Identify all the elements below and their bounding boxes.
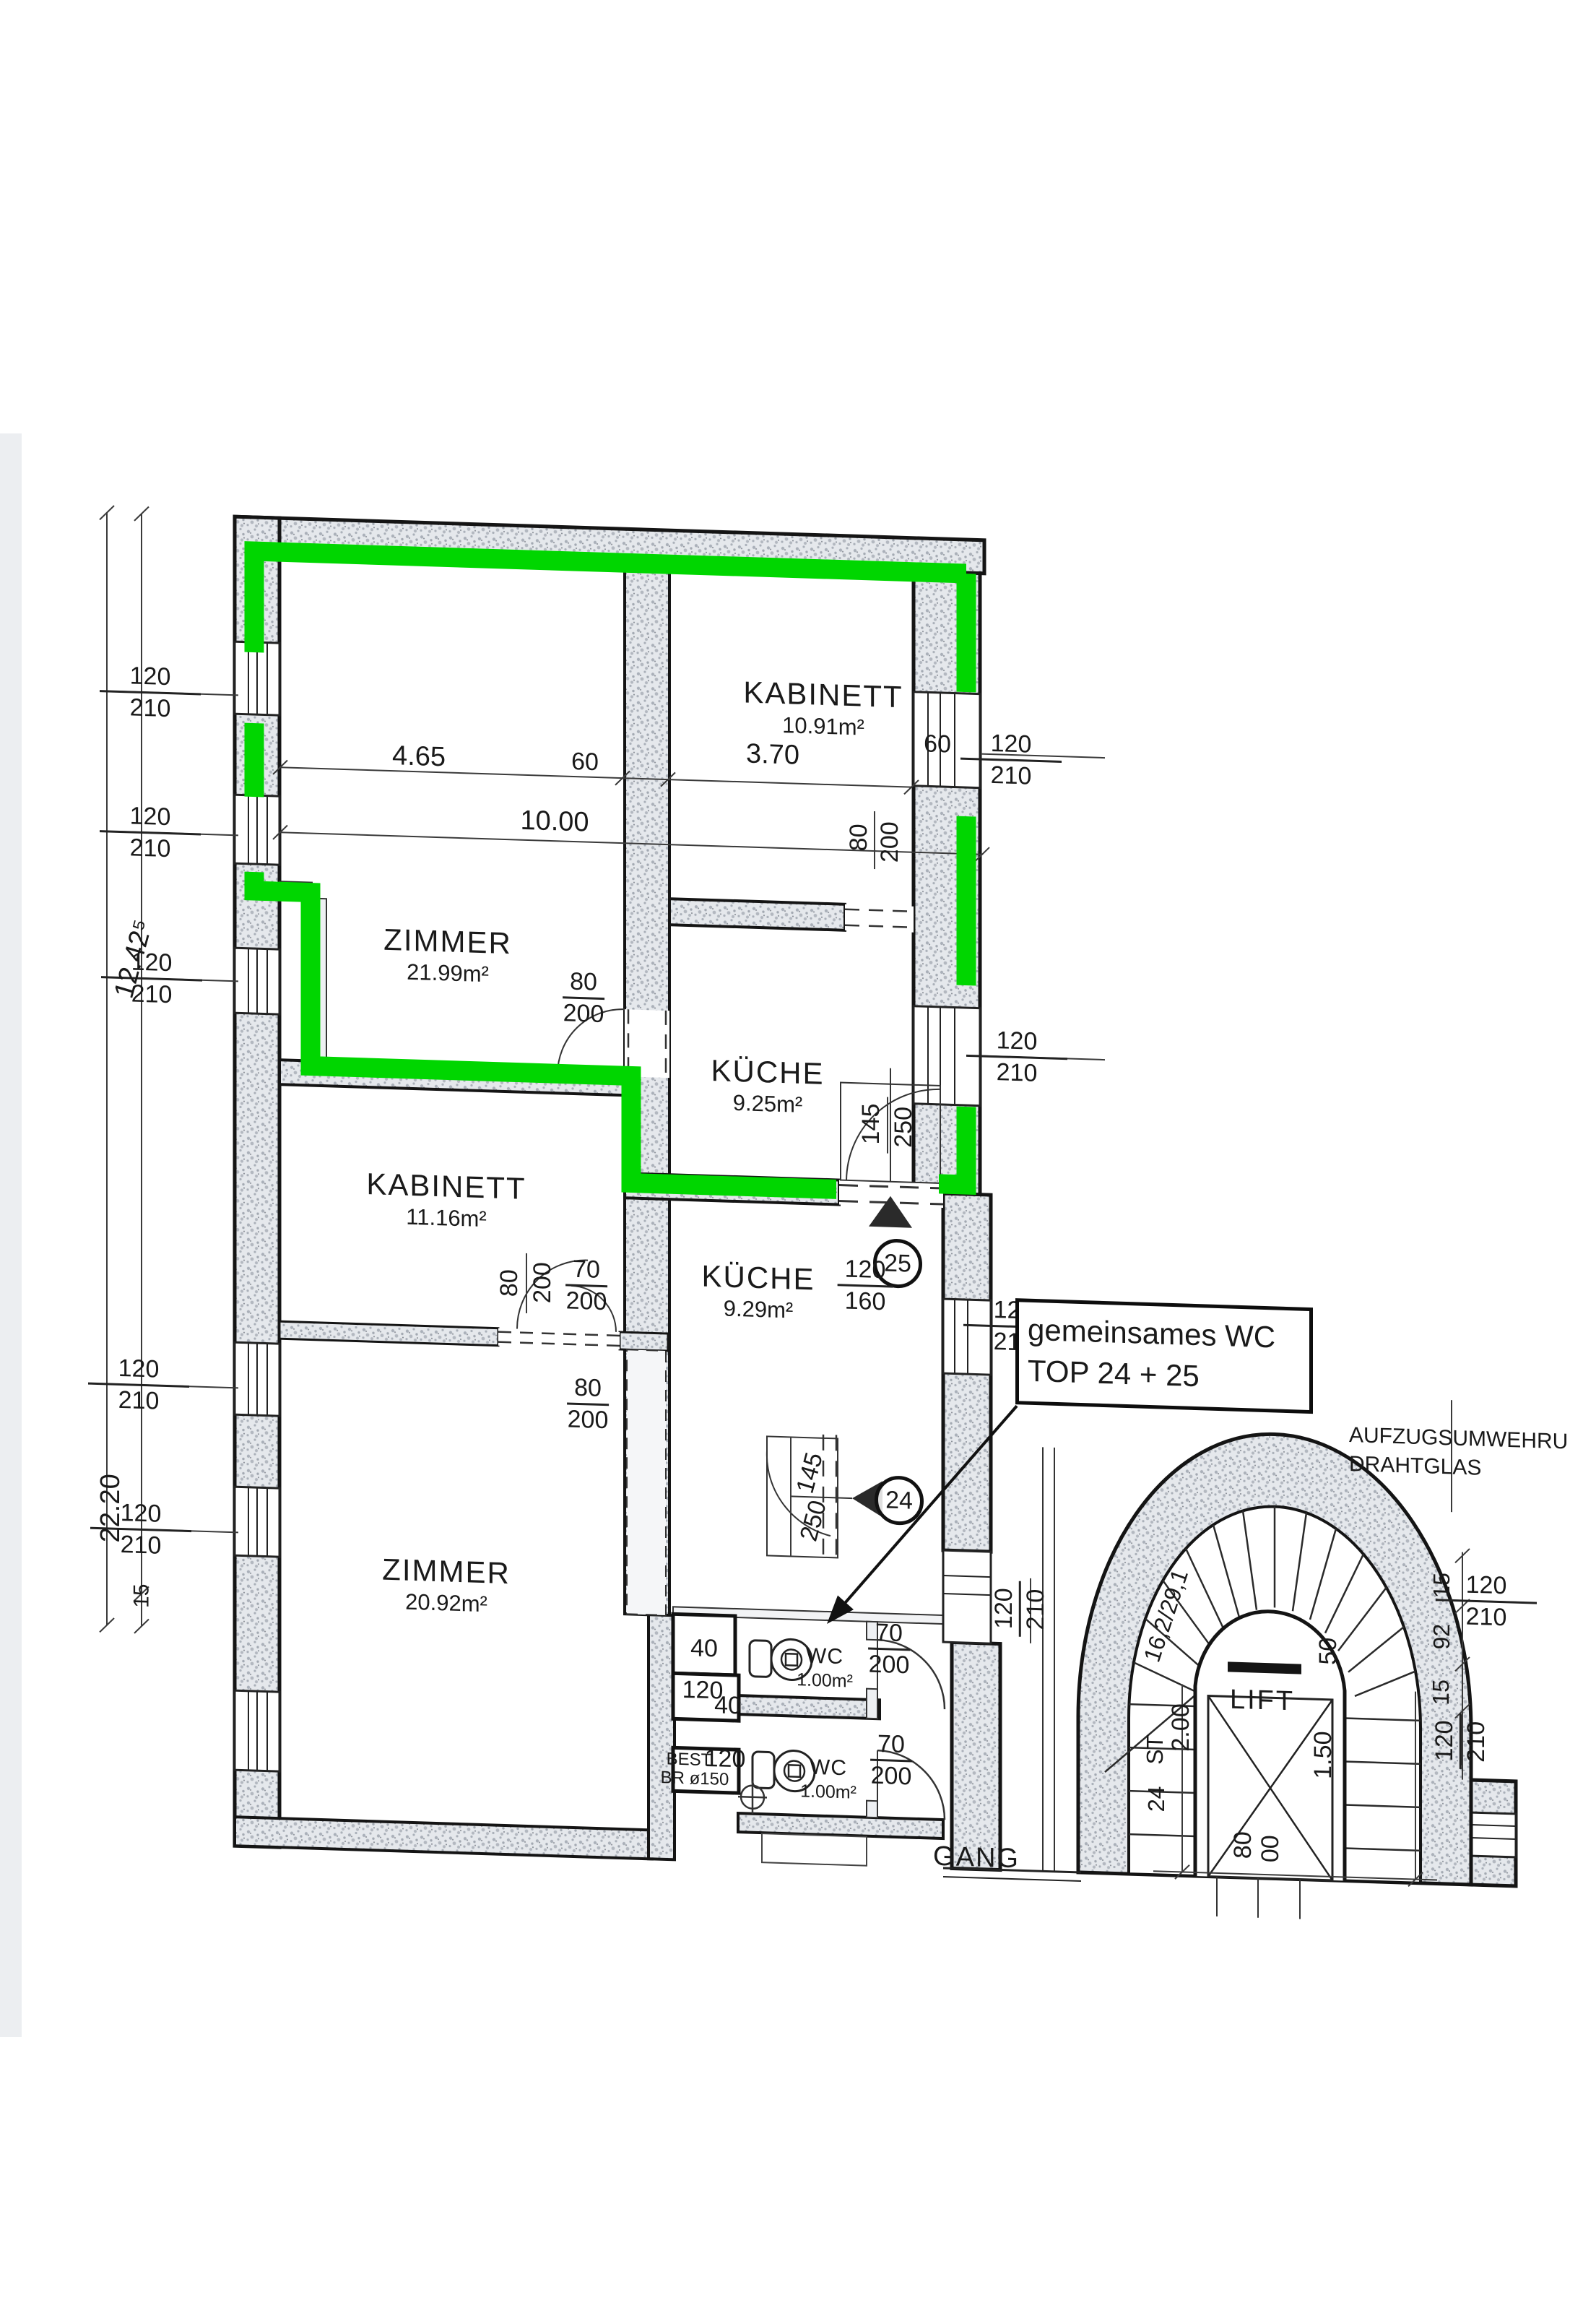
dim-40-b: 40 <box>714 1693 742 1719</box>
dim-rot-80-b: 80 <box>497 1269 523 1297</box>
dim-60-b: 60 <box>924 731 951 758</box>
room-label-zimmer-2092: ZIMMER20.92m² <box>382 1552 511 1619</box>
stairwell <box>943 1424 1471 1924</box>
dim-15-left: 15 <box>130 1583 153 1608</box>
dim-465: 4.65 <box>392 742 446 772</box>
dim-window-stair-side: 120210 <box>1431 1713 1489 1770</box>
dim-window-left-4: 120210 <box>88 1354 189 1416</box>
dim-window-right-1: 120210 <box>960 730 1062 791</box>
stair-50: 50 <box>1316 1637 1342 1665</box>
dim-door-70-200: 70200 <box>565 1255 607 1315</box>
dim-rot-200: 200 <box>877 821 903 863</box>
dim-window-left-1: 120210 <box>100 662 201 723</box>
room-label-kueche-925: KÜCHE9.25m² <box>711 1053 824 1119</box>
dim-door-250: 250 <box>891 1106 917 1148</box>
room-label-wc-2: WC1.00m² <box>800 1755 856 1803</box>
dim-370: 3.70 <box>746 740 799 771</box>
room-label-kabinett-1116: KABINETT11.16m² <box>366 1167 526 1234</box>
dim-2220: 22.20 <box>97 1474 126 1543</box>
dim-door-kueche-120-160: 120160 <box>838 1255 893 1315</box>
stair-right-15a: 15 <box>1430 1572 1454 1599</box>
label-br-150: BR ø150 <box>661 1768 729 1789</box>
dim-door-145: 145 <box>859 1103 885 1145</box>
room-label-zimmer-2199: ZIMMER21.99m² <box>383 922 512 989</box>
lift-dim-00: 00 <box>1258 1835 1284 1863</box>
stair-right-92: 92 <box>1430 1623 1454 1650</box>
lift-dim-80: 80 <box>1231 1831 1257 1859</box>
dim-rot-200-b: 200 <box>530 1262 556 1304</box>
callout-line2: TOP 24 + 25 <box>1028 1350 1301 1400</box>
dim-1000: 10.00 <box>520 807 589 838</box>
floorplan-page: KABINETT10.91m² ZIMMER21.99m² KÜCHE9.25m… <box>0 0 1596 2308</box>
highlight-boundary <box>254 551 966 1193</box>
dim-40-a: 40 <box>690 1635 718 1662</box>
dim-rot-80: 80 <box>846 824 872 852</box>
label-best: BEST. <box>667 1750 715 1769</box>
stair-right-15b: 15 <box>1429 1679 1454 1706</box>
dim-door-80-200: 80200 <box>567 1374 609 1433</box>
label-drahtglas: DRAHTGLAS <box>1349 1453 1481 1479</box>
label-lift: LIFT <box>1230 1686 1295 1717</box>
room-label-kabinett-1091: KABINETT10.91m² <box>743 675 903 742</box>
dim-window-left-2: 120210 <box>100 802 201 863</box>
dim-60-a: 60 <box>571 749 599 776</box>
floor-plan-drawing <box>0 0 1596 2308</box>
stair-st: ST <box>1143 1734 1168 1765</box>
callout-gemeinsames-wc: gemeinsames WC TOP 24 + 25 <box>1015 1298 1313 1414</box>
dim-window-right-2: 120210 <box>966 1027 1067 1088</box>
dim-door-zimmer: 80200 <box>563 968 604 1027</box>
stair-150: 1.50 <box>1311 1731 1337 1779</box>
dim-door-wc1: 70200 <box>868 1620 910 1679</box>
floorplan-sheet: KABINETT10.91m² ZIMMER21.99m² KÜCHE9.25m… <box>0 0 1596 2308</box>
stair-count: 24 <box>1145 1786 1169 1812</box>
dim-door-wc2: 70200 <box>870 1731 912 1790</box>
stair-200: 2.00 <box>1168 1703 1194 1752</box>
room-label-wc-1: WC1.00m² <box>797 1643 853 1692</box>
room-label-kueche-929: KÜCHE9.29m² <box>701 1259 815 1325</box>
dim-door-corridor: 120210 <box>991 1581 1049 1638</box>
label-gang: GANG <box>933 1843 1020 1875</box>
